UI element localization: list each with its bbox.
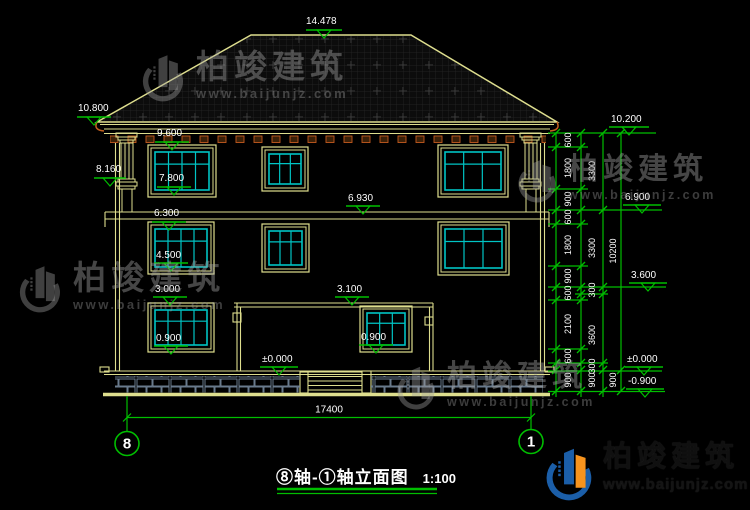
level-right-f2: 3.600 <box>631 270 656 281</box>
level-f2-slab: 6.930 <box>348 193 373 204</box>
dim-sub: 3300 <box>587 238 597 258</box>
dim-seg: 600 <box>563 285 573 300</box>
plinth-stone-right <box>371 376 543 393</box>
level-entry-ground: ±0.000 <box>262 354 293 365</box>
dim-seg: 900 <box>563 191 573 206</box>
level-f1-window-top: 3.000 <box>155 284 180 295</box>
level-right-site: -0.900 <box>628 376 656 387</box>
drawing-title-block: ⑧轴-①轴立面图 1:100 <box>276 463 456 488</box>
dim-seg: 1800 <box>563 158 573 178</box>
level-pilaster-base: 8.160 <box>96 164 121 175</box>
dim-sub: 3600 <box>587 325 597 345</box>
level-f1-window-sill: 0.900 <box>156 333 181 344</box>
brand-url: www.baijunjz.com <box>603 476 748 493</box>
drawing-title: ⑧轴-①轴立面图 <box>276 463 409 488</box>
level-f3-window-sill: 7.800 <box>159 173 184 184</box>
level-right-parapet: 10.200 <box>611 114 642 125</box>
level-right-ground: ±0.000 <box>627 354 658 365</box>
elevation-linework <box>0 0 750 510</box>
pilaster-right <box>520 133 541 212</box>
level-f2-window-sill: 4.500 <box>156 250 181 261</box>
level-f2-window-top: 6.300 <box>154 208 179 219</box>
gutter-curl-left <box>96 122 104 131</box>
level-porch-roof: 3.100 <box>337 284 362 295</box>
dim-sub: 300 <box>587 358 597 373</box>
dim-total: 10200 <box>608 238 618 263</box>
gutter-curl-right <box>550 122 558 131</box>
window-graphic <box>438 222 509 275</box>
brand-logo-icon <box>543 443 595 501</box>
plinth-stone-left <box>115 376 300 393</box>
dim-total-width: 17400 <box>315 405 343 416</box>
level-right-f3: 6.900 <box>625 192 650 203</box>
dim-seg: 900 <box>563 268 573 283</box>
brand-name: 柏竣建筑 <box>603 443 748 472</box>
level-ridge: 14.478 <box>306 16 337 27</box>
dim-seg: 1800 <box>563 235 573 255</box>
brand-logo: 柏竣建筑 www.baijunjz.com <box>543 443 748 501</box>
dim-seg: 900 <box>563 372 573 387</box>
dim-sub: 3300 <box>587 161 597 181</box>
dim-seg: 600 <box>563 348 573 363</box>
drawing-scale: 1:100 <box>423 471 456 486</box>
dim-seg: 600 <box>563 209 573 224</box>
dim-sub: 300 <box>587 282 597 297</box>
level-left-eave: 10.800 <box>78 103 109 114</box>
dim-seg: 600 <box>563 132 573 147</box>
dim-sub: 900 <box>587 372 597 387</box>
level-porch-window-sill: 0.900 <box>361 332 386 343</box>
dim-total: 900 <box>608 372 618 387</box>
axis-label-8: 8 <box>123 436 131 453</box>
roof <box>90 30 570 144</box>
window-graphic <box>438 145 508 197</box>
level-f3-window-top: 9.600 <box>157 128 182 139</box>
cad-elevation-canvas: 14.478 10.800 8.160 9.600 7.800 6.930 6.… <box>0 0 750 510</box>
dim-seg: 2100 <box>563 314 573 334</box>
axis-label-1: 1 <box>527 434 535 451</box>
